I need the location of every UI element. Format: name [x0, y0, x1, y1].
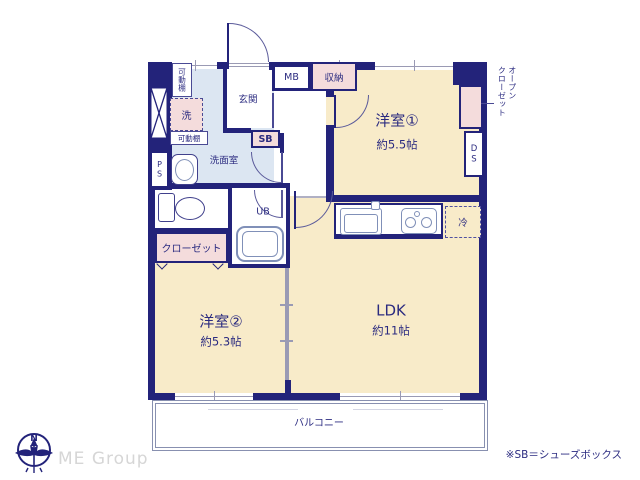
compass-icon: N [11, 426, 57, 476]
wall-genkan-bottom [223, 128, 251, 133]
wall-bed1-bottom [326, 195, 487, 202]
open-closet-line2: クローゼット [496, 66, 506, 164]
bedroom1-size: 約5.5帖 [376, 139, 417, 151]
balcony-sash [353, 409, 443, 410]
burner-icon [421, 217, 432, 228]
open-closet-pointer [481, 103, 494, 104]
faucet-icon [371, 201, 380, 210]
toilet-bowl-icon [175, 197, 205, 220]
storage-box: 収納 [311, 62, 357, 91]
wall-top-c [355, 62, 375, 70]
wall-hall-washroom [280, 133, 284, 153]
washroom-door-leaf [281, 152, 283, 183]
meter-box: MB [272, 64, 311, 91]
balcony-label: バルコニー [294, 419, 344, 429]
wall-corner-tr [453, 62, 487, 85]
movable-shelf-label: 可動棚 [178, 133, 201, 144]
ldk-name: LDK [376, 304, 406, 319]
wall-bed1-left-b [326, 125, 334, 197]
open-closet [459, 85, 483, 129]
bedroom2-size: 約5.3帖 [200, 336, 241, 348]
ldk-size: 約11帖 [372, 325, 410, 337]
open-closet-label: オープン クローゼット [496, 66, 517, 164]
closet-label: クローゼット [162, 240, 222, 255]
sliding-partition [285, 266, 289, 380]
wall-bed1-left-a [326, 91, 334, 97]
balcony-sash [208, 409, 298, 410]
meter-box-label: MB [284, 72, 299, 83]
partition-foot [285, 380, 291, 394]
storage-label: 収納 [324, 70, 343, 84]
vanity-basin-icon [175, 159, 194, 181]
meter-hatch-icon [150, 87, 168, 139]
pipe-space-label: PS [155, 160, 164, 179]
pipe-space-box: PS [151, 152, 168, 187]
entrance-door-arc [229, 23, 269, 62]
bathtub-inner-icon [242, 231, 278, 257]
shoe-box-label: SB [258, 134, 272, 145]
genkan-label: 玄関 [238, 95, 257, 105]
burner-icon [414, 211, 420, 217]
open-closet-line1: オープン [506, 66, 516, 164]
genkan-step-line [272, 93, 274, 128]
burner-icon [405, 217, 416, 228]
shoe-box: SB [251, 130, 280, 148]
toilet-tank-icon [158, 193, 175, 222]
kitchen-sink-basin-icon [344, 214, 378, 233]
entrance-threshold [229, 62, 269, 69]
duct-space-label: DS [469, 144, 479, 165]
window [340, 393, 460, 400]
footnote: ※SB＝シューズボックス [506, 447, 622, 462]
duct-space-box: DS [464, 131, 484, 177]
partition-tick [280, 304, 293, 306]
washer-space: 洗 [170, 98, 203, 131]
wall-genkan-left [223, 62, 227, 132]
movable-shelf-vertical: 可動棚 [172, 63, 192, 97]
refrigerator-space: 冷 [445, 206, 481, 238]
unit-bath-label: UB [256, 207, 269, 217]
bedroom1-name: 洋室① [375, 114, 418, 129]
movable-shelf-horizontal: 可動棚 [170, 131, 208, 145]
window [375, 62, 453, 70]
washer-label: 洗 [182, 107, 192, 122]
floor-plan: UB クローゼット MB 収納 SB PS 可動棚 洗 可動棚 [0, 0, 640, 480]
movable-shelf-label: 可動棚 [177, 68, 188, 92]
partition-tick [280, 340, 293, 342]
bedroom2-name: 洋室② [199, 315, 242, 330]
logo-text: ME Group [58, 449, 149, 469]
refrigerator-label: 冷 [458, 215, 468, 229]
washroom-label: 洗面室 [210, 156, 239, 166]
window [175, 393, 253, 400]
